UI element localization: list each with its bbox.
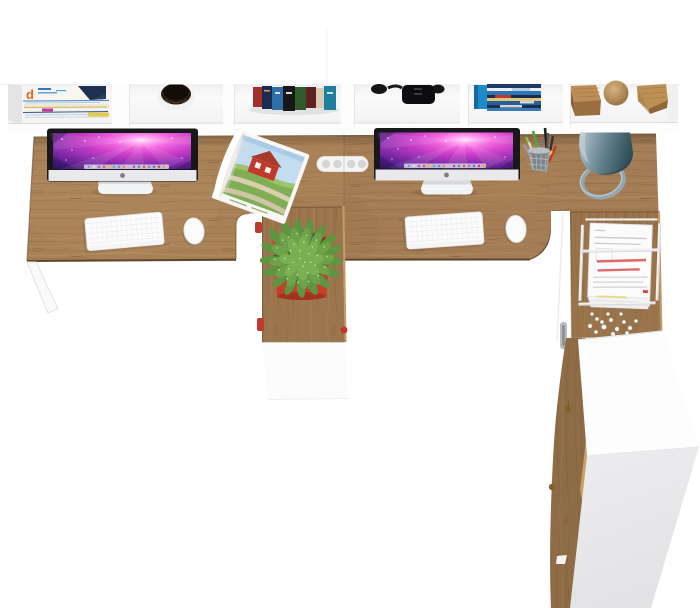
svg-text:d: d — [26, 87, 34, 102]
